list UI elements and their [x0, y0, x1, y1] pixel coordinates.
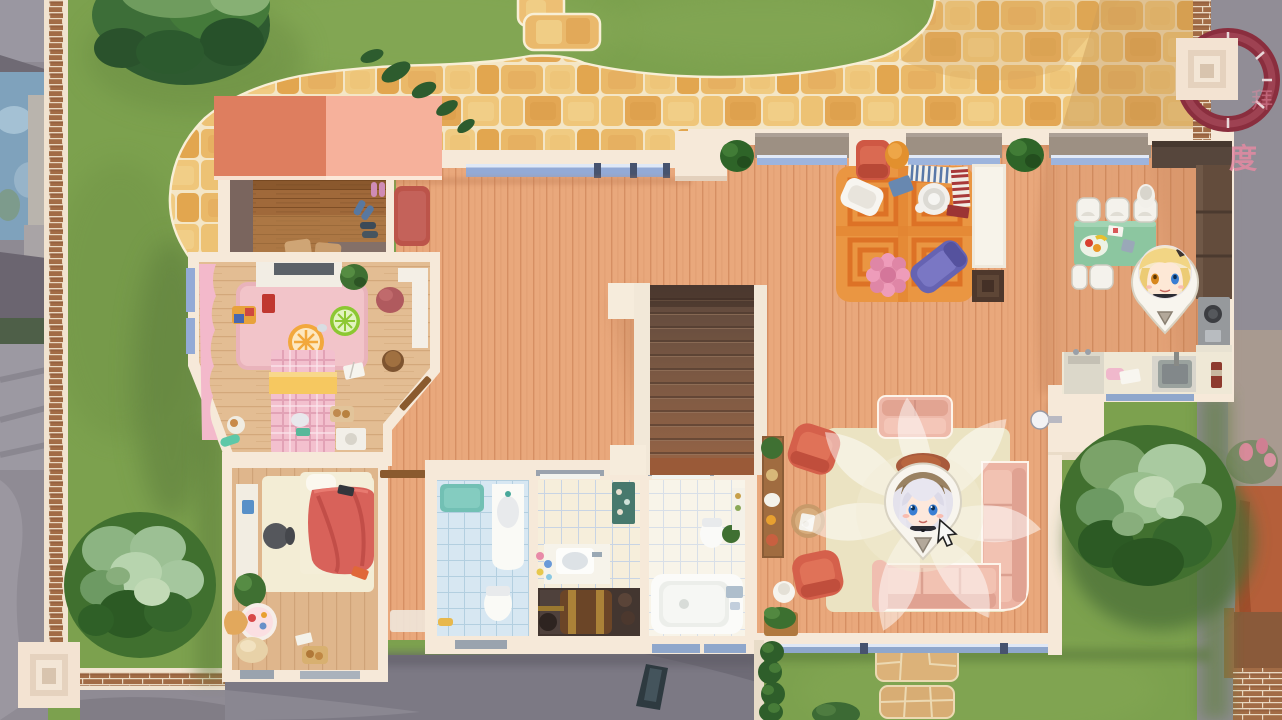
svg-text:拜: 拜: [1251, 88, 1273, 113]
svg-text:度: 度: [1229, 143, 1257, 174]
